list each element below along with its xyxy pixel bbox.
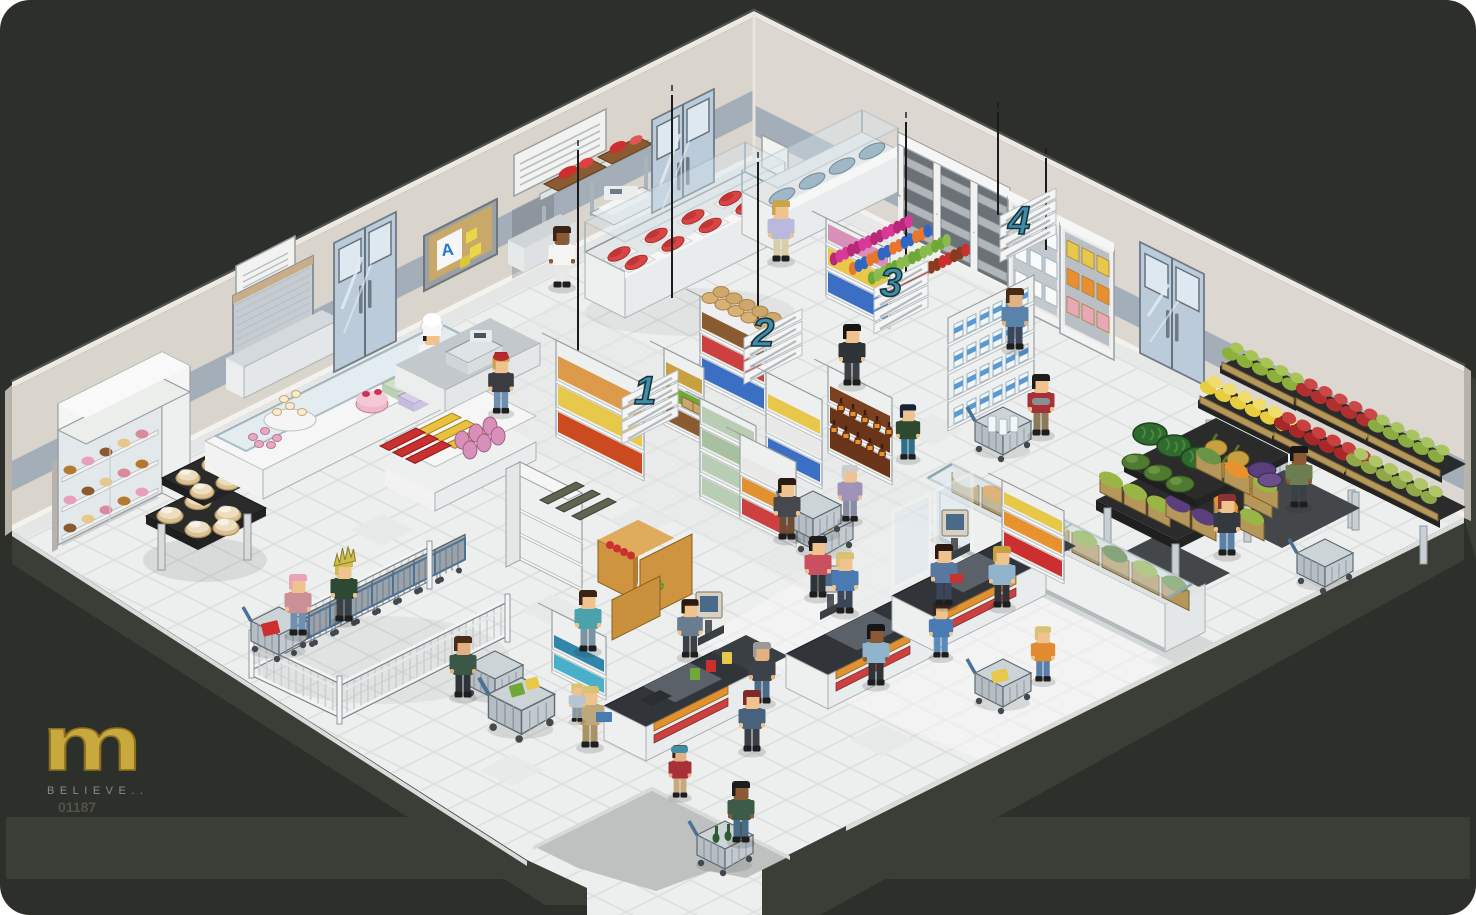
svg-text:A: A: [440, 240, 454, 260]
svg-text:2: 2: [751, 311, 774, 355]
svg-text:01187: 01187: [58, 799, 96, 815]
svg-text:4: 4: [1007, 199, 1030, 243]
svg-text:m: m: [42, 699, 142, 787]
svg-text:3: 3: [880, 261, 902, 305]
svg-text:1: 1: [634, 369, 656, 413]
svg-text:BELIEVE..: BELIEVE..: [47, 785, 148, 797]
